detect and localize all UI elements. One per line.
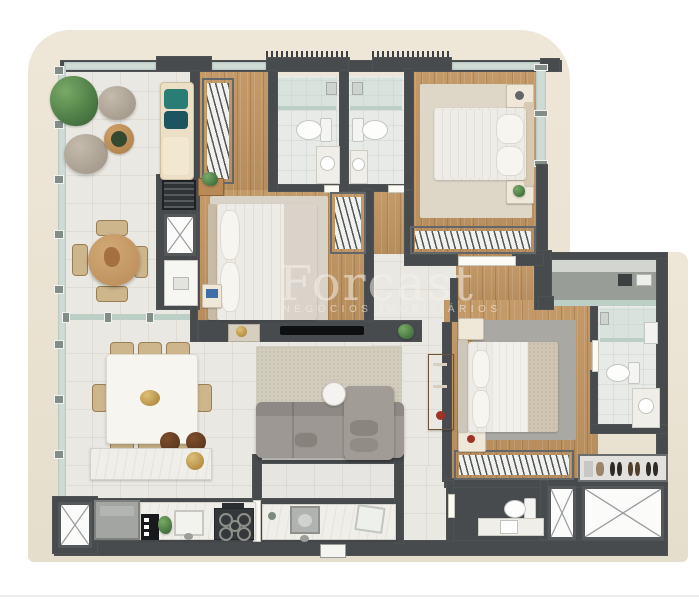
wc-toilet [504, 500, 526, 518]
teal-cushion-2 [164, 111, 188, 129]
suite-nightstand-a [458, 318, 484, 340]
shower-head-2 [352, 82, 363, 95]
bath3-niche [644, 322, 658, 344]
bar-shelf-item [433, 363, 447, 366]
laundry-item [268, 512, 276, 520]
wall-bedroom2-bottom-a [404, 254, 458, 266]
barbecue-grill [162, 180, 196, 210]
floor-plan-canvas: Forcast NEGÓCIOS IMOBILIÁRIOS [0, 0, 699, 600]
burner [229, 520, 241, 532]
wardrobe-bedroom1-a [202, 78, 234, 184]
terrace-partition-glass [64, 314, 198, 320]
partition-post [62, 312, 70, 323]
tv [280, 326, 364, 335]
shoe [653, 462, 658, 476]
shower-glass-2 [350, 106, 402, 110]
kitchen-faucet [184, 533, 193, 540]
bed1-pillow-a [220, 210, 240, 260]
shoe [610, 462, 615, 476]
wc-door [448, 494, 455, 518]
wall-right-upper [536, 164, 548, 260]
teal-cushion-1 [164, 89, 188, 109]
shower-head-3 [600, 312, 609, 325]
balcony-ledge [552, 260, 658, 272]
wall-bedroom2-bottom-b [512, 254, 544, 266]
cup [144, 532, 149, 536]
bed3-pillow-a [472, 350, 490, 388]
bed3-blanket [528, 342, 558, 432]
pouf-1 [98, 86, 136, 120]
window-post [534, 64, 548, 71]
round-table-chair-left [72, 244, 88, 276]
partition-post [146, 312, 154, 323]
island-bowl [186, 452, 204, 470]
bed3-headboard [458, 340, 468, 432]
shoe [617, 462, 622, 476]
fridge [94, 500, 140, 540]
bar-shelf-item [433, 385, 447, 388]
wall-top-block2 [266, 57, 350, 72]
coffee-station [141, 514, 159, 540]
hall-floor [374, 188, 408, 254]
dining-chair [196, 384, 212, 412]
sofa-pillow [350, 420, 378, 436]
laundry-board [354, 504, 385, 534]
railing-post [54, 450, 64, 459]
tv-wall-plant [398, 324, 414, 339]
balcony-box [636, 274, 652, 286]
shoe [628, 462, 633, 476]
sink-2 [352, 158, 365, 171]
sofa-seam [292, 402, 294, 458]
cup [144, 525, 149, 529]
wall-suite-hall [450, 278, 458, 322]
wall-suite-bath-b [590, 370, 598, 430]
tv-console-decor [236, 326, 247, 337]
wall-laundry-left [252, 454, 262, 502]
window-post [534, 110, 548, 117]
suite-nightstand-decor [467, 435, 475, 443]
shaft-x-right-a [548, 486, 576, 540]
sofa-pillow [350, 438, 378, 452]
railing-post [54, 285, 64, 294]
fridge-top [100, 506, 134, 516]
wall-bathroom1-left [268, 70, 278, 192]
bed3-sheet [492, 342, 528, 432]
wall-wc-left-b [446, 516, 454, 542]
shoe-rack-item [584, 461, 593, 477]
bed1-pillow-b [220, 262, 240, 312]
toilet-1 [296, 120, 322, 140]
terrace-counter [164, 260, 198, 306]
pouf-2 [64, 134, 108, 174]
bed3-pillow-b [472, 390, 490, 428]
wall-suite-bath-a [590, 306, 598, 342]
wall-wc-left-a [446, 480, 454, 494]
shower-glass-1 [278, 106, 336, 110]
wall-suite-top-corner [538, 296, 554, 310]
wc-sink [500, 520, 518, 534]
dining-centerpiece-bowl [140, 390, 160, 406]
nightstand-decor-blue [206, 289, 218, 298]
balcony-glass-door [552, 300, 658, 306]
bedroom1-nightstand [202, 284, 222, 308]
railing-post [54, 230, 64, 239]
wall-right-wing-top [550, 252, 668, 260]
kitchen-plant [158, 516, 172, 534]
sink-3 [638, 398, 654, 414]
nightstand-plant [513, 185, 525, 197]
sofa-pillow [294, 432, 318, 448]
toilet-3 [606, 364, 630, 382]
living-side-table [322, 382, 346, 406]
bar-red-decor [436, 411, 445, 420]
wardrobe-suite [454, 450, 574, 480]
sofa-chaise [344, 386, 394, 460]
shaft-x-bottom-left [58, 502, 92, 548]
bedroom1-window [212, 62, 266, 70]
cup [144, 518, 149, 522]
round-table-chair-bottom [96, 286, 128, 302]
railing-post [54, 175, 64, 184]
bar-cabinet [428, 354, 454, 430]
partition-post [104, 312, 112, 323]
bed1-blanket [284, 204, 317, 320]
wardrobe-bedroom1-b [330, 192, 366, 254]
table-sculpture [104, 247, 120, 267]
laundry-vent [320, 544, 346, 558]
bed2-pillow-b [496, 146, 524, 176]
shoe-rack [578, 454, 668, 482]
counter-sink [173, 277, 189, 290]
nightstand-lamp [515, 91, 524, 100]
wall-bottom [54, 540, 668, 556]
shaft-x-terrace [164, 214, 196, 256]
armchair-seat [163, 137, 189, 175]
laundry-sink [290, 506, 320, 534]
balcony-ac-unit [618, 274, 632, 286]
terrace-plant [50, 76, 98, 126]
wall-top-block1 [156, 56, 212, 72]
railing-post [54, 340, 64, 349]
wall-bathroom2-right [404, 68, 414, 190]
bedroom1-plant [202, 172, 218, 186]
wardrobe-bedroom2 [410, 226, 536, 254]
terrace-window [64, 62, 156, 70]
railing-post [54, 395, 64, 404]
laundry-sink-bowl [298, 514, 312, 527]
suite-bathroom-door [592, 340, 599, 372]
toilet-2 [362, 120, 388, 140]
shoe [646, 462, 651, 476]
laundry-faucet [300, 535, 309, 542]
bedroom2-door [458, 256, 516, 266]
railing-post [54, 66, 64, 75]
cooktop [214, 508, 254, 540]
sink-1 [320, 156, 335, 171]
image-bottom-edge [0, 595, 699, 597]
shoe [635, 462, 640, 476]
shower-head-1 [326, 82, 337, 95]
terrace-armchair [160, 82, 194, 180]
bed2-duvet [434, 110, 496, 178]
bed2-pillow-a [496, 114, 524, 144]
wall-top-block3 [348, 60, 374, 72]
shoe-pair [596, 462, 604, 476]
bedroom2-window [452, 62, 540, 70]
shaft-x-right-b [582, 486, 664, 540]
wall-between-bathrooms [339, 70, 349, 192]
side-table-plant [111, 131, 127, 147]
